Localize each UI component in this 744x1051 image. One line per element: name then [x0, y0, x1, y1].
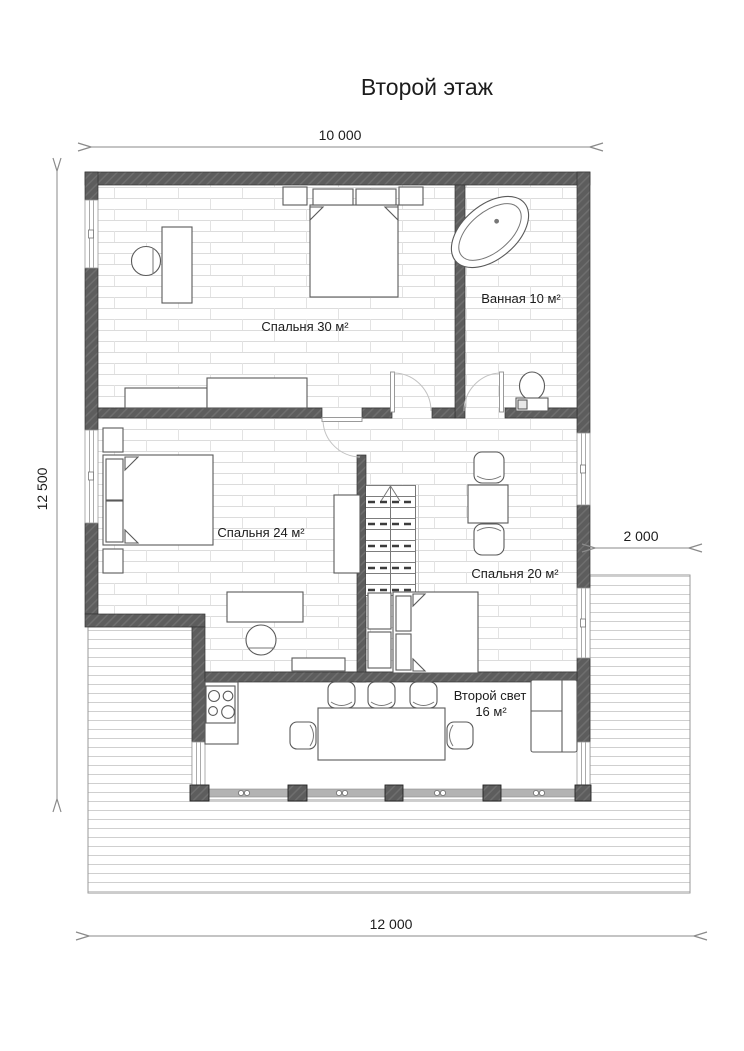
label-second-light: Второй свет	[454, 688, 527, 703]
double-bed-icon	[310, 189, 398, 297]
page-title: Второй этаж	[361, 74, 494, 100]
chair-icon	[410, 682, 437, 708]
porch-post	[575, 785, 591, 801]
wall-left-lower	[192, 627, 205, 742]
chair-icon	[368, 682, 395, 708]
nightstand-icon	[368, 632, 391, 668]
porch-post	[483, 785, 501, 801]
floor-plan-page: Второй этаж	[0, 0, 744, 1051]
desk-chair-icon	[246, 625, 276, 655]
wall-left-1	[85, 172, 98, 200]
wardrobe-icon	[334, 495, 360, 573]
label-bedroom20: Спальня 20 м²	[471, 566, 559, 581]
desk-icon	[162, 227, 192, 303]
wall-jog	[85, 614, 205, 627]
chair-icon	[447, 722, 473, 749]
wardrobe-icon	[207, 378, 307, 408]
label-bedroom30: Спальня 30 м²	[261, 319, 349, 334]
wall-lower-h	[205, 672, 577, 682]
porch-glazing	[190, 785, 591, 801]
window	[577, 588, 590, 658]
dimension-bottom-value: 12 000	[370, 916, 413, 932]
wall-right-3	[577, 658, 590, 742]
kitchen-counter-icon	[205, 682, 238, 744]
dimension-left: 12 500	[34, 171, 57, 799]
wall-right-2	[577, 505, 590, 588]
nightstand-icon	[103, 549, 123, 573]
dimension-top-value: 10 000	[319, 127, 362, 143]
nightstand-icon	[368, 593, 391, 629]
dresser-icon	[125, 388, 207, 408]
label-second-light-area: 16 м²	[475, 704, 507, 719]
wall-right-1	[577, 172, 590, 433]
dimension-top: 10 000	[91, 127, 590, 147]
double-bed-icon	[393, 592, 478, 673]
sofa-icon	[531, 680, 577, 752]
wall-left-2	[85, 268, 98, 430]
dimension-bottom: 12 000	[89, 916, 694, 936]
porch-post	[288, 785, 307, 801]
floor-plan-svg: Второй этаж	[0, 0, 744, 1051]
dimension-left-value: 12 500	[34, 467, 50, 510]
dresser-icon	[292, 658, 345, 671]
table-icon	[468, 485, 508, 523]
porch-post	[190, 785, 209, 801]
staircase	[366, 485, 419, 600]
window	[192, 742, 205, 785]
wall-mid-b	[362, 408, 392, 418]
chair-icon	[328, 682, 355, 708]
dimension-right-value: 2 000	[623, 528, 658, 544]
window	[85, 200, 98, 268]
nightstand-icon	[399, 187, 423, 205]
wall-mid-c	[432, 408, 455, 418]
wall-left-3	[85, 523, 98, 614]
window	[85, 430, 98, 523]
window	[577, 433, 590, 505]
porch-post	[385, 785, 403, 801]
chair-icon	[290, 722, 316, 749]
double-bed-icon	[103, 455, 213, 545]
chair-icon	[474, 452, 504, 483]
label-bedroom24: Спальня 24 м²	[217, 525, 305, 540]
label-bathroom: Ванная 10 м²	[481, 291, 561, 306]
chair-icon	[474, 524, 504, 555]
window	[577, 742, 590, 785]
wall-mid-a	[98, 408, 322, 418]
nightstand-icon	[283, 187, 307, 205]
desk-chair-icon	[132, 247, 161, 276]
wall-top	[85, 172, 590, 185]
desk-icon	[227, 592, 303, 622]
dining-table-icon	[318, 708, 445, 760]
nightstand-icon	[103, 428, 123, 452]
dimension-right: 2 000	[595, 528, 689, 548]
